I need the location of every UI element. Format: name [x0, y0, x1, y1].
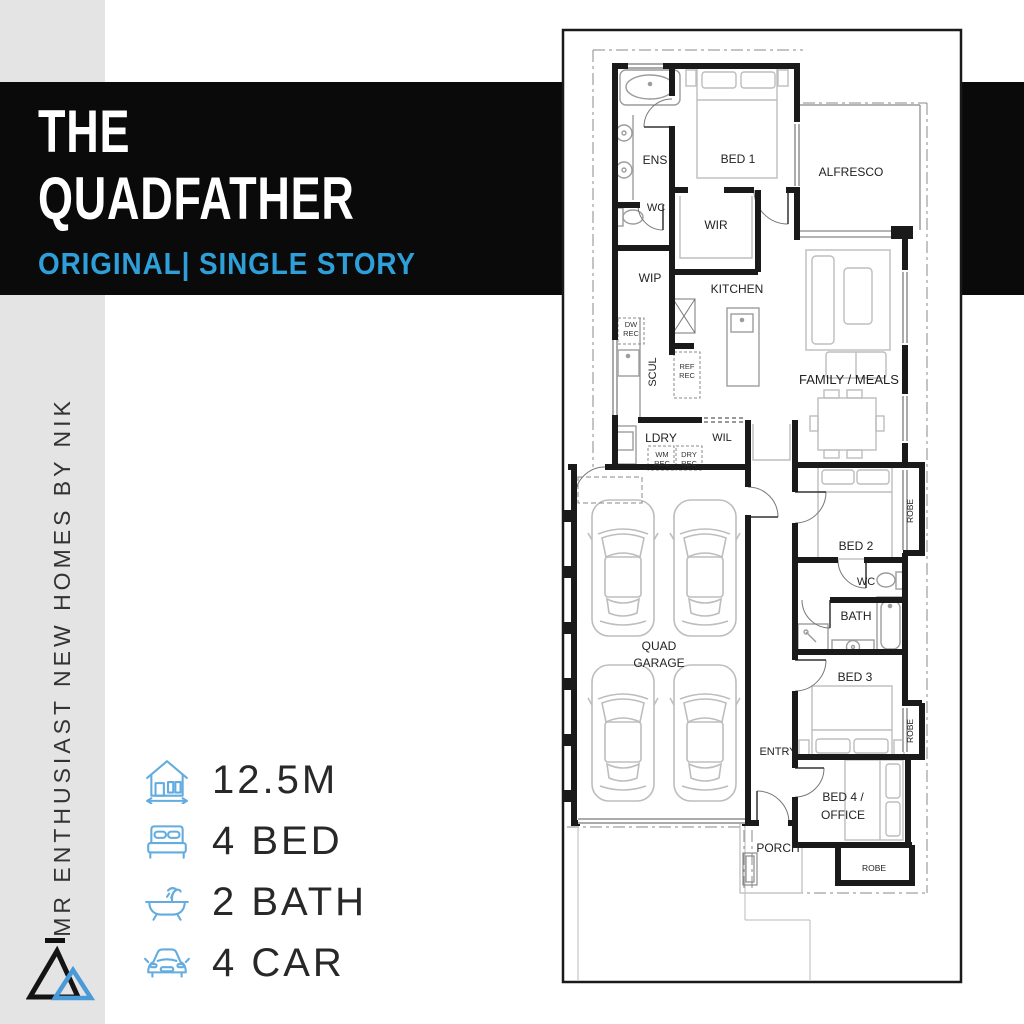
- room-label-dw: DW: [625, 320, 638, 329]
- floor-plan: ENSWCBED 1ALFRESCOWIRWIPKITCHENSCULFAMIL…: [0, 0, 1024, 1024]
- room-label-bed-1: BED 1: [721, 152, 756, 166]
- room-label-rec: REC: [654, 459, 670, 468]
- room-label-rec: REC: [681, 459, 697, 468]
- room-label-family-meals: FAMILY / MEALS: [799, 372, 899, 387]
- room-label-bed-4-: BED 4 /: [822, 790, 864, 804]
- room-label-bed-3: BED 3: [838, 670, 873, 684]
- room-label-alfresco: ALFRESCO: [819, 165, 884, 179]
- room-label-dry: DRY: [681, 450, 697, 459]
- room-label-kitchen: KITCHEN: [711, 282, 764, 296]
- room-label-ens: ENS: [643, 153, 668, 167]
- room-label-wip: WIP: [639, 271, 662, 285]
- room-label-quad: QUAD: [642, 639, 677, 653]
- room-label-wir: WIR: [704, 218, 728, 232]
- room-label-bed-2: BED 2: [839, 539, 874, 553]
- room-label-ref: REF: [680, 362, 695, 371]
- room-label-rec: REC: [679, 371, 695, 380]
- room-label-bath: BATH: [840, 609, 871, 623]
- lot-boundary: [563, 30, 961, 982]
- room-label-ldry: LDRY: [645, 431, 677, 445]
- room-label-garage: GARAGE: [633, 656, 684, 670]
- room-label-scul: SCUL: [647, 357, 659, 386]
- room-label-wm: WM: [655, 450, 668, 459]
- room-label-robe: ROBE: [905, 719, 915, 743]
- room-label-robe: ROBE: [905, 499, 915, 523]
- room-label-rec: REC: [623, 329, 639, 338]
- room-label-entry: ENTRY: [759, 746, 797, 758]
- room-label-porch: PORCH: [756, 841, 799, 855]
- room-label-wil: WIL: [712, 432, 732, 444]
- room-label-wc: WC: [857, 576, 875, 588]
- room-label-wc: WC: [647, 202, 665, 214]
- room-label-robe: ROBE: [862, 863, 886, 873]
- room-label-office: OFFICE: [821, 808, 865, 822]
